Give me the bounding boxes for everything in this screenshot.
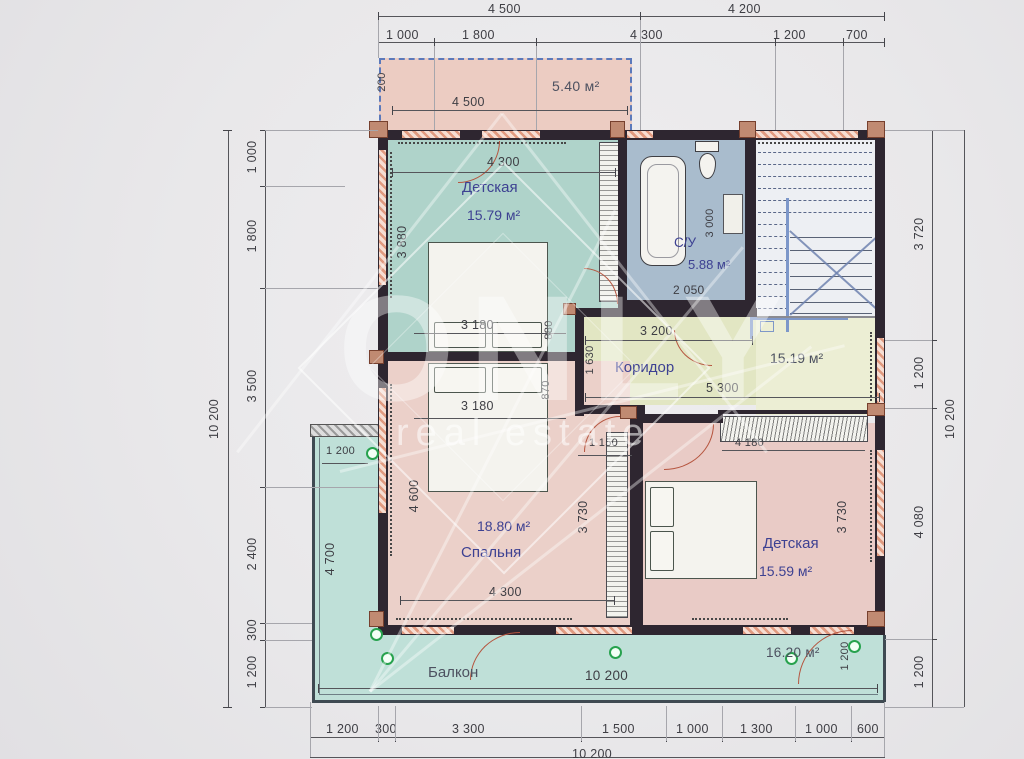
dim-left-3500: 3 500 — [245, 363, 259, 409]
dim-extension — [851, 706, 852, 741]
wall-hatch — [877, 450, 884, 556]
dim-extension — [722, 706, 723, 741]
stair-tread-dashed — [758, 236, 788, 237]
pillow — [650, 531, 674, 571]
dim-left-300: 300 — [245, 607, 259, 653]
dim-extension — [885, 707, 964, 708]
dim-line — [378, 42, 885, 43]
bath-name: С/У — [674, 235, 696, 250]
balcony-bottom-depth: 1 200 — [839, 636, 851, 676]
balcony-post — [366, 447, 379, 460]
dim-extension — [434, 46, 435, 130]
stair-tread-dashed — [758, 248, 788, 249]
dim-extension — [885, 639, 932, 640]
balcony-bottom-name: Балкон — [428, 664, 478, 681]
dim-extension — [581, 706, 582, 741]
dim-bottom-1200: 1 200 — [326, 722, 359, 736]
dim-extension — [885, 130, 964, 131]
dim-extension — [884, 702, 885, 757]
balcony-bottom-width: 10 200 — [585, 668, 628, 683]
dim-left-1000: 1 000 — [245, 134, 259, 180]
dim-extension — [265, 487, 378, 488]
dim-line — [228, 130, 229, 707]
dim-extension — [378, 706, 379, 741]
stair-tread-dashed — [758, 152, 872, 153]
bath-shelf — [723, 194, 743, 234]
dim-extension — [265, 707, 312, 708]
balcony-inner-line — [319, 694, 878, 695]
stair-tread — [790, 237, 872, 238]
dim-extension — [265, 186, 345, 187]
dim-tick — [884, 12, 885, 21]
dim-bottom-1000a: 1 000 — [676, 722, 709, 736]
wall-pier — [739, 121, 756, 138]
dim-tick — [884, 38, 885, 47]
dim-tick — [223, 130, 232, 131]
wall-pier — [867, 611, 885, 627]
dim-bottom-600: 600 — [857, 722, 879, 736]
dim-extension — [265, 640, 312, 641]
dim-extension — [885, 340, 932, 341]
dim-line — [378, 16, 885, 17]
dim-bottom-3300: 3 300 — [452, 722, 485, 736]
dim-tick — [392, 106, 393, 115]
balcony-edge — [883, 635, 886, 702]
watermark-brand: ONLY — [338, 262, 797, 435]
dim-extension — [395, 706, 396, 741]
dim-extension — [885, 408, 932, 409]
window-wavy — [692, 618, 788, 620]
window-wavy — [870, 332, 872, 412]
wall-hatch — [482, 131, 540, 138]
bedroom-height-right: 3 730 — [576, 494, 590, 540]
balcony-edge — [312, 430, 315, 702]
balcony-top-width: 4 500 — [452, 95, 485, 109]
stair-tread — [790, 263, 872, 264]
wall-hatch — [627, 131, 653, 138]
dim-bottom-1000b: 1 000 — [805, 722, 838, 736]
wall-pier — [867, 121, 885, 138]
dim-left-1800: 1 800 — [245, 213, 259, 259]
dim-right-4080: 4 080 — [912, 499, 926, 545]
window-wavy — [758, 142, 872, 144]
dim-right-total: 10 200 — [943, 392, 957, 446]
stair-tread-dashed — [758, 176, 872, 177]
dim-line — [964, 130, 965, 707]
dim-right-1200b: 1 200 — [912, 649, 926, 695]
dim-extension — [795, 706, 796, 741]
dim-top2-700: 700 — [846, 28, 868, 42]
balcony-left-height: 4 700 — [323, 536, 337, 582]
dim-bottom-1300: 1 300 — [740, 722, 773, 736]
stair-tread — [790, 289, 872, 290]
balcony-inner-line — [319, 438, 320, 695]
balcony-post — [370, 628, 383, 641]
balcony-left-width: 1 200 — [326, 445, 355, 457]
dim-top2-1800: 1 800 — [462, 28, 495, 42]
wall-pier — [369, 611, 384, 627]
stair-tread-dashed — [758, 260, 788, 261]
stair-tread-dashed — [758, 224, 788, 225]
stair-tread — [790, 313, 872, 314]
dim-tick — [400, 596, 401, 605]
wall-hatch — [402, 131, 460, 138]
dim-tick — [392, 168, 393, 177]
wall-pier — [610, 121, 625, 138]
wall-hatch — [750, 131, 858, 138]
stair-tread-dashed — [758, 164, 872, 165]
balcony-post — [609, 646, 622, 659]
dim-tick — [877, 684, 878, 693]
dim-tick — [879, 393, 880, 402]
bath-height: 3 000 — [704, 201, 716, 245]
dim-extension — [640, 20, 641, 130]
dim-top-4500: 4 500 — [488, 2, 521, 16]
dim-tick — [614, 596, 615, 605]
stair-tread-dashed — [758, 212, 872, 213]
dim-right-1200a: 1 200 — [912, 350, 926, 396]
dim-extension — [843, 46, 844, 130]
dim-top2-4300: 4 300 — [630, 28, 663, 42]
dim-extension — [666, 706, 667, 741]
dim-extension — [265, 623, 312, 624]
dim-left-1200: 1 200 — [245, 649, 259, 695]
dim-line — [932, 130, 933, 707]
dim-top2-1200: 1 200 — [773, 28, 806, 42]
balcony-top-depth: 200 — [376, 65, 388, 99]
dim-tick — [615, 168, 616, 177]
dim-left-2400: 2 400 — [245, 531, 259, 577]
dim-line — [392, 110, 628, 111]
dim-left-total: 10 200 — [207, 392, 221, 446]
dim-bottom-total: 10 200 — [572, 747, 612, 759]
window-wavy — [870, 450, 872, 562]
dim-tick — [223, 707, 232, 708]
balcony-edge — [312, 700, 885, 703]
dim-extension — [310, 702, 311, 757]
dim-extension — [378, 20, 379, 58]
window-wavy — [396, 618, 572, 620]
dim-extension — [265, 130, 378, 131]
floor-plan-scene: 4 500 4 200 1 000 1 800 4 300 1 200 700 … — [0, 0, 1024, 759]
watermark-subtitle: real estate — [396, 412, 650, 455]
dim-right-3720: 3 720 — [912, 211, 926, 257]
wall-hatch — [556, 627, 632, 634]
wall-pier — [867, 403, 885, 416]
dim-tick — [627, 106, 628, 115]
dim-bottom-1500: 1 500 — [602, 722, 635, 736]
dim-extension — [775, 46, 776, 130]
nursery2-height-right: 3 730 — [835, 494, 849, 540]
toilet-tank — [695, 141, 719, 152]
dim-line — [400, 600, 615, 601]
stair-tread-dashed — [758, 188, 872, 189]
nursery2-area: 15.59 м² — [759, 563, 812, 579]
dim-tick — [318, 684, 319, 693]
dim-line — [318, 688, 878, 689]
wall-hatch — [743, 627, 791, 634]
dim-line — [722, 450, 865, 451]
stair-tread-dashed — [758, 200, 872, 201]
dim-top-4200: 4 200 — [728, 2, 761, 16]
balcony-bottom-area: 16.20 м² — [766, 645, 820, 660]
dim-extension — [536, 46, 537, 130]
pillow — [650, 487, 674, 527]
nursery2-name: Детская — [763, 535, 819, 552]
dim-line — [310, 737, 885, 738]
balcony-top-area: 5.40 м² — [552, 78, 600, 94]
dim-top2-1000: 1 000 — [386, 28, 419, 42]
